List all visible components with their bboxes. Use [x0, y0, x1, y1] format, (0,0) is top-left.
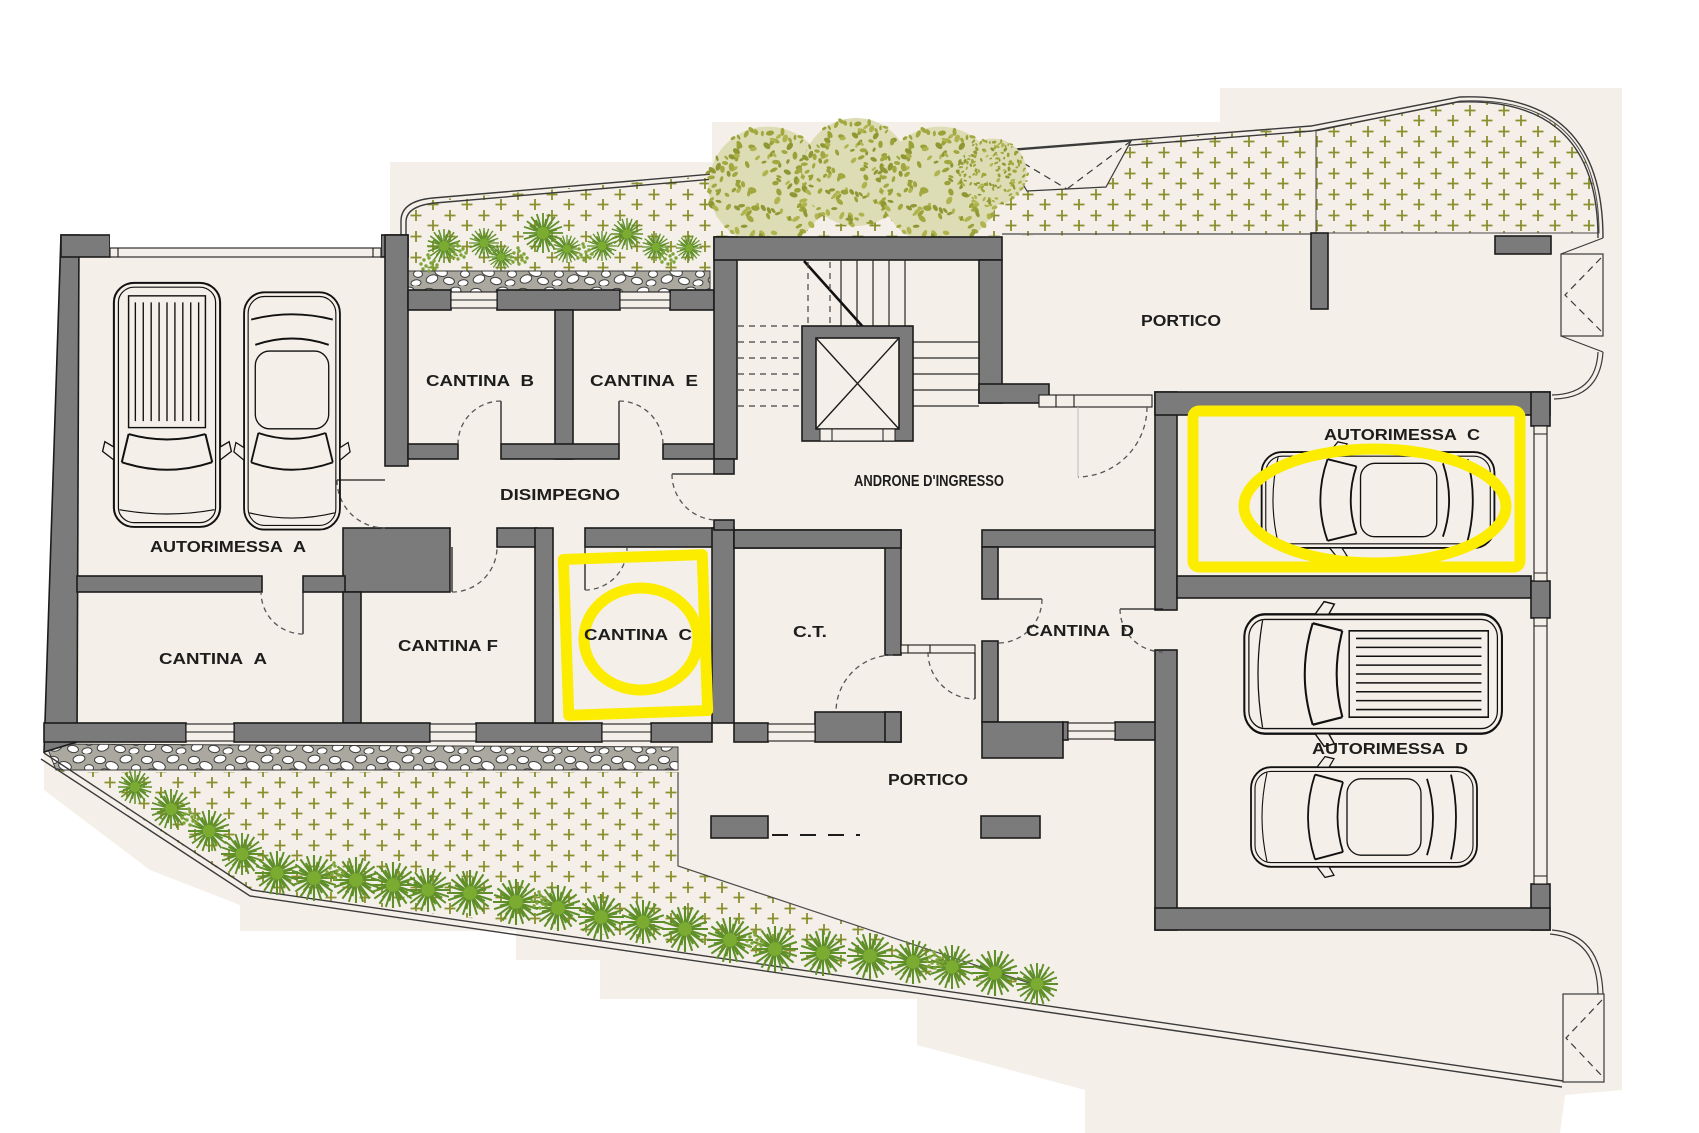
svg-text:DISIMPEGNO: DISIMPEGNO	[500, 487, 620, 504]
svg-text:CANTINA D: CANTINA D	[1026, 623, 1134, 640]
svg-text:CANTINA C: CANTINA C	[584, 627, 693, 644]
svg-text:PORTICO: PORTICO	[888, 772, 968, 789]
svg-text:AUTORIMESSA A: AUTORIMESSA A	[150, 539, 306, 556]
svg-text:PORTICO: PORTICO	[1141, 313, 1221, 330]
svg-text:CANTINA F: CANTINA F	[398, 638, 498, 655]
svg-text:CANTINA B: CANTINA B	[426, 373, 534, 390]
svg-text:CANTINA E: CANTINA E	[590, 373, 698, 390]
svg-text:ANDRONE D'INGRESSO: ANDRONE D'INGRESSO	[854, 473, 1004, 490]
svg-text:AUTORIMESSA D: AUTORIMESSA D	[1312, 741, 1468, 758]
svg-text:C.T.: C.T.	[793, 624, 827, 641]
svg-text:AUTORIMESSA C: AUTORIMESSA C	[1324, 427, 1480, 444]
svg-text:CANTINA A: CANTINA A	[159, 651, 268, 668]
